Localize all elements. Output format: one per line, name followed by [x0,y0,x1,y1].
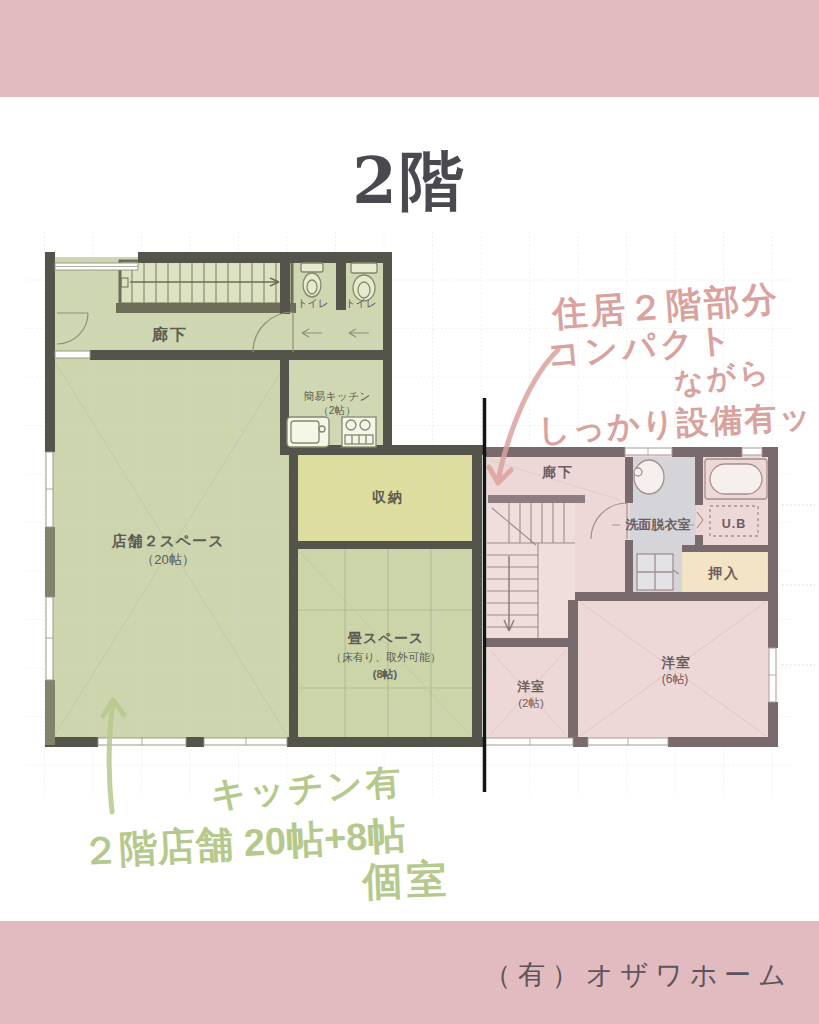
label-toilet-2: トイレ [345,297,377,309]
label-kitchen: 簡易キッチン [303,390,370,402]
label-kitchen-size: （2帖） [318,404,355,416]
label-tatami-size: (8帖) [373,668,398,680]
label-western-2-size: (2帖) [518,697,544,709]
washbasin-icon [634,460,664,494]
washing-machine-icon [637,554,679,590]
staircase-left [116,261,296,313]
toilet-icon [301,263,323,297]
green-note-line2: ２階店舗 20帖+8帖 [80,814,406,873]
label-shop-size: （20帖） [141,552,194,567]
label-shop: 店舗２スペース [110,532,224,549]
label-tatami-note: （床有り、取外可能） [331,651,441,663]
label-washroom: 洗面脱衣室 [625,517,691,532]
label-western-6-size: (6帖) [662,672,689,686]
kitchen-sink-icon [287,417,329,447]
floor-plan-page: 2階 [0,0,819,1024]
label-corridor-right: 廊下 [541,464,574,480]
label-western-6: 洋室 [661,655,691,670]
green-note-line3: 個室 [360,856,451,903]
toilet-icon [351,263,377,301]
bottom-banner: （有）オザワホーム [0,921,819,1024]
company-name: （有）オザワホーム [484,957,793,993]
stove-icon [342,417,376,447]
label-closet: 押入 [707,565,740,581]
label-storage: 収納 [372,489,404,505]
label-western-2: 洋室 [517,679,545,694]
label-toilet-1: トイレ [297,297,329,309]
label-tatami: 畳スペース [347,630,424,646]
label-unit-bath: U.B [722,517,747,531]
label-corridor-left: 廊下 [151,325,188,343]
floor-plan-drawing: 廊下 トイレ トイレ 簡易キッチン （2帖） 店舗２スペース （20帖） 収納 … [0,0,819,1024]
